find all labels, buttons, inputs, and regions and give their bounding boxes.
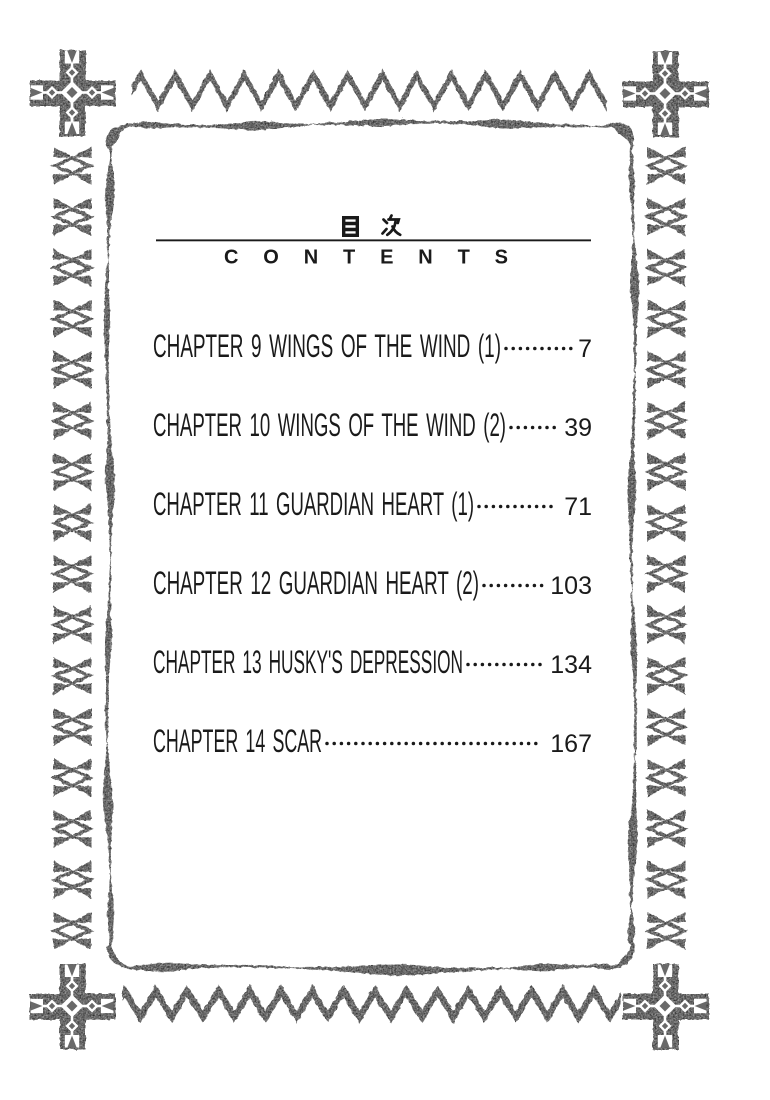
svg-text:CHAPTER 9 WINGS OF THE WIND (: CHAPTER 9 WINGS OF THE WIND (1) (153, 328, 501, 364)
svg-text:71: 71 (564, 493, 592, 521)
svg-text:7: 7 (578, 335, 592, 363)
svg-text:103: 103 (550, 572, 592, 600)
svg-text:CHAPTER 12 GUARDIAN HEART (2): CHAPTER 12 GUARDIAN HEART (2) (153, 565, 479, 601)
svg-text:C O N T E N T S: C O N T E N T S (224, 247, 510, 269)
svg-text:CHAPTER 14 SCAR: CHAPTER 14 SCAR (153, 723, 322, 759)
svg-text:134: 134 (550, 651, 592, 679)
svg-text:CHAPTER 10 WINGS OF THE WIND (: CHAPTER 10 WINGS OF THE WIND (2) (153, 407, 506, 443)
svg-text:CHAPTER 11 GUARDIAN HEART (1): CHAPTER 11 GUARDIAN HEART (1) (153, 486, 474, 522)
svg-text:39: 39 (564, 414, 592, 442)
svg-text:167: 167 (550, 730, 592, 758)
svg-text:CHAPTER 13 HUSKY'S DEPRESSION: CHAPTER 13 HUSKY'S DEPRESSION (153, 644, 463, 680)
